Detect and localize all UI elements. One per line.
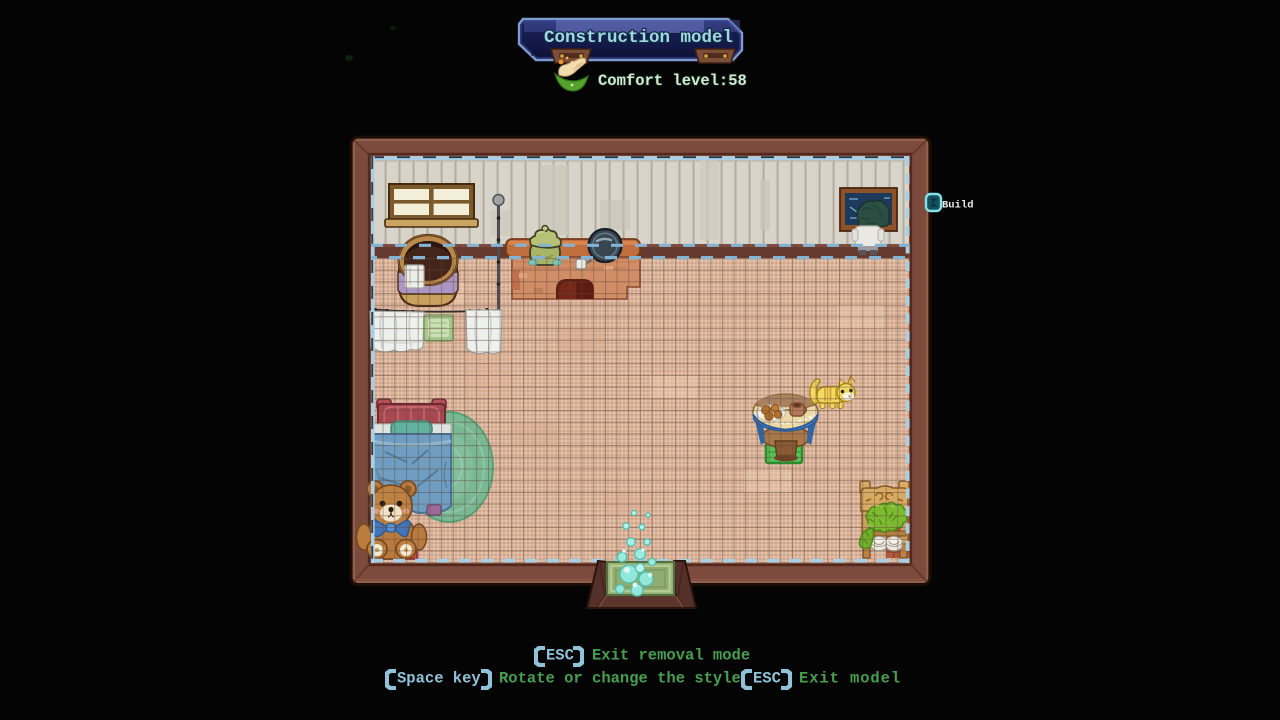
svg-text:Exit removal mode: Exit removal mode — [592, 647, 750, 665]
svg-text:Comfort level:58: Comfort level:58 — [598, 72, 747, 90]
svg-text:Space key: Space key — [397, 670, 481, 688]
svg-text:Construction model: Construction model — [544, 28, 733, 48]
svg-text:Exit model: Exit model — [799, 670, 901, 688]
svg-text:ESC: ESC — [753, 670, 781, 688]
svg-text:Rotate or change the style: Rotate or change the style — [499, 670, 741, 688]
svg-text:ESC: ESC — [546, 647, 574, 665]
svg-text:Build: Build — [942, 200, 974, 212]
